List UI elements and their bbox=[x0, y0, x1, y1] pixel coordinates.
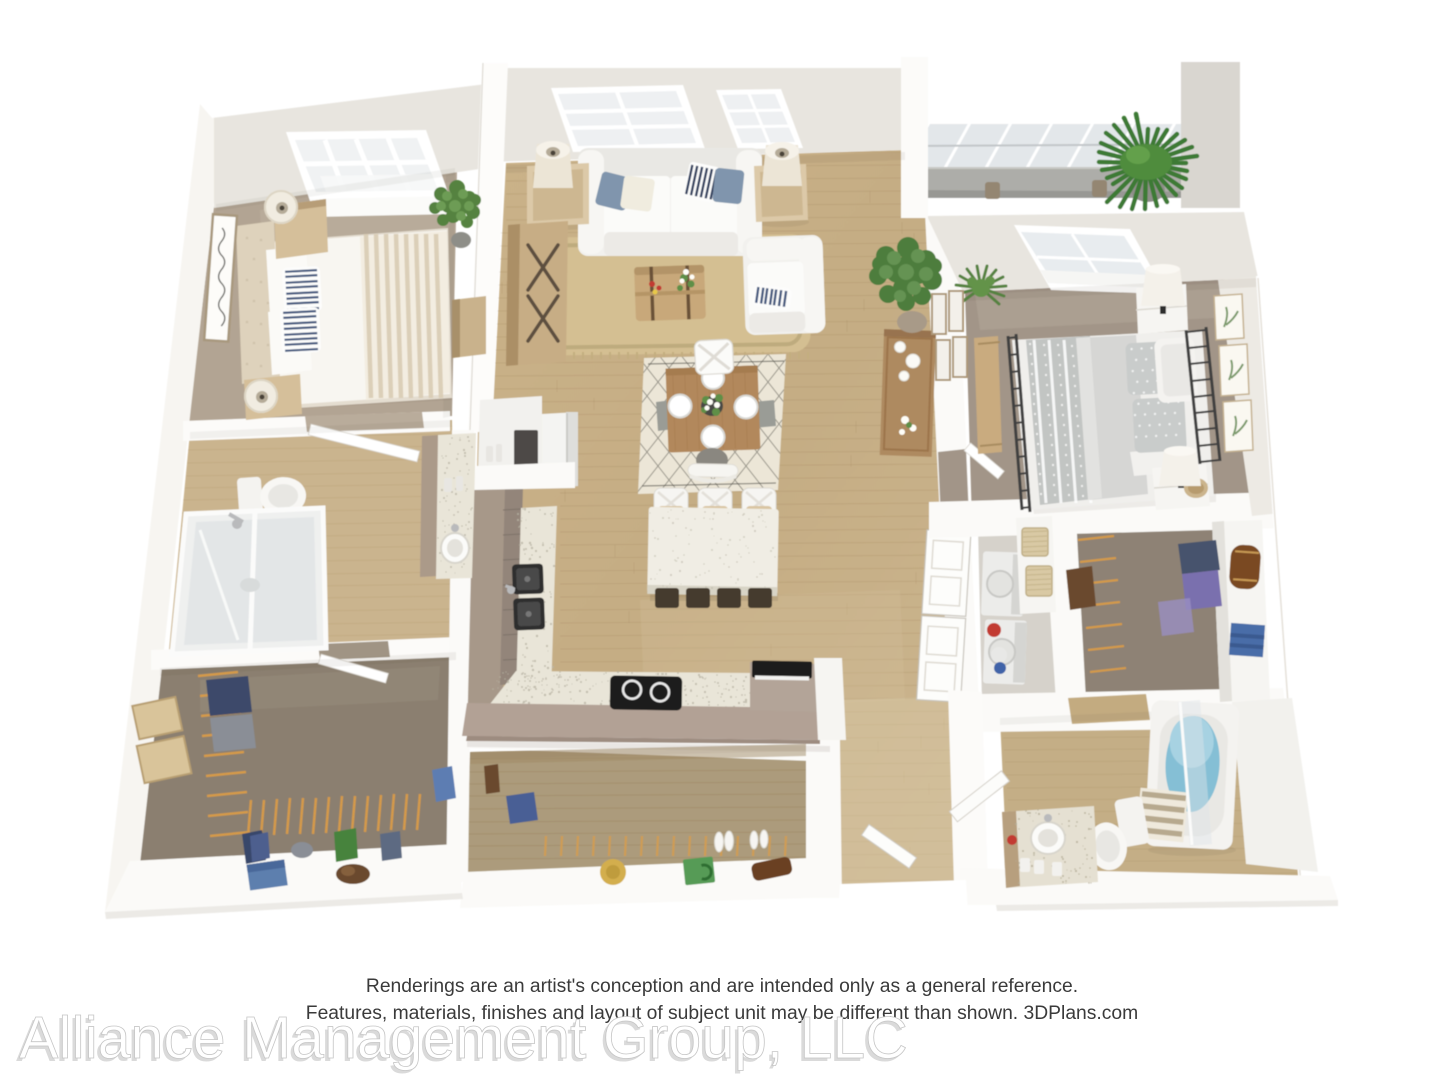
svg-text:Alliance Management Group, LLC: Alliance Management Group, LLC bbox=[19, 1005, 908, 1071]
svg-text:Renderings are an artist's con: Renderings are an artist's conception an… bbox=[366, 976, 1078, 997]
